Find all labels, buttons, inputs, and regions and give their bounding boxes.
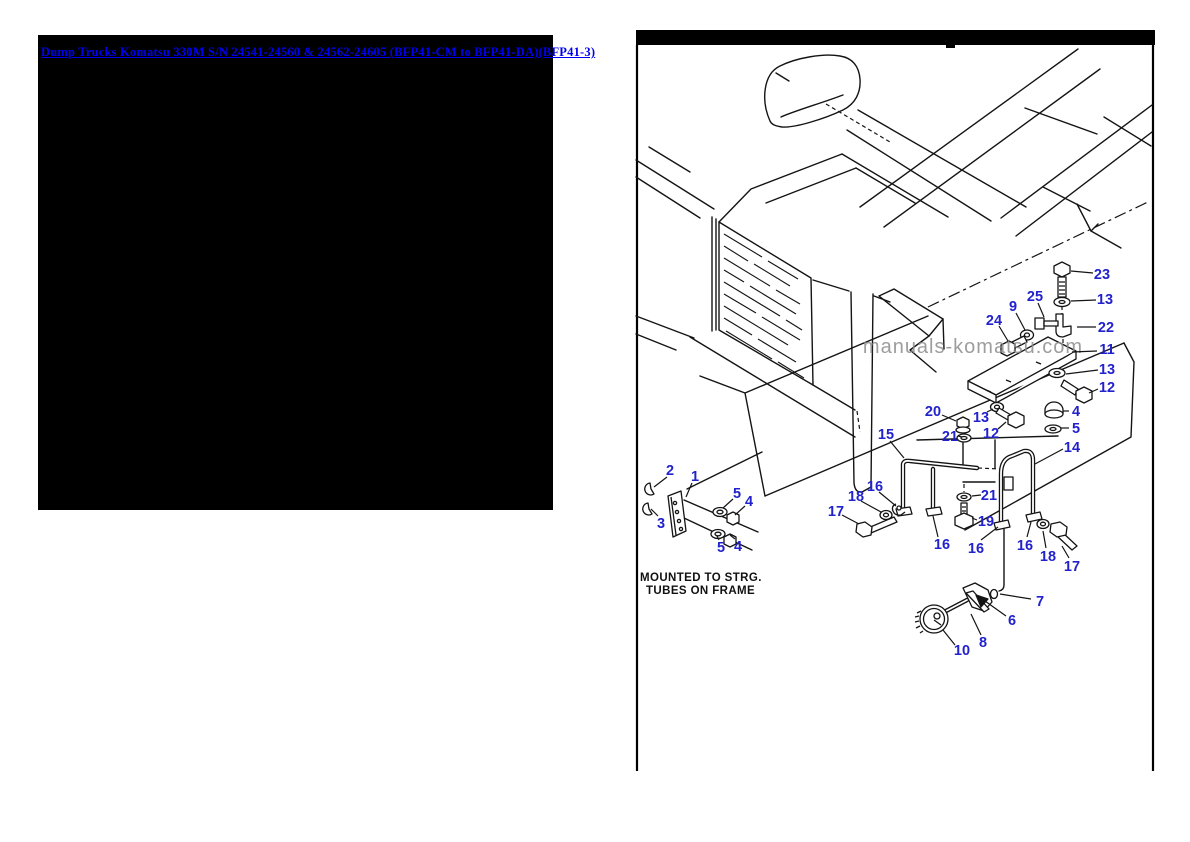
- tube-tab: [1004, 477, 1013, 490]
- washer-icon: [711, 530, 725, 539]
- callout-number-16: 16: [1017, 538, 1033, 554]
- callout-leader-line: [1038, 303, 1044, 317]
- callout-leader-line: [717, 536, 719, 540]
- page-image-black-placeholder: [38, 35, 553, 510]
- callout-number-12: 12: [1099, 380, 1115, 396]
- nut-icon: [1045, 402, 1063, 414]
- callout-number-17: 17: [1064, 559, 1080, 575]
- diagram-border-lines: [637, 45, 1153, 771]
- callout-leader-line: [723, 499, 733, 508]
- nut-icon: [727, 512, 739, 525]
- diagram-top-bar: [636, 30, 1155, 45]
- callout-leader-line: [1071, 271, 1093, 273]
- bolt-icon: [1061, 380, 1078, 395]
- callout-number-5: 5: [717, 540, 725, 556]
- callout-number-7: 7: [1036, 594, 1044, 610]
- callout-leader-line: [1072, 351, 1097, 352]
- callout-leader-line: [730, 535, 735, 539]
- machine-structure-lines: [636, 49, 1152, 591]
- box-louver-hatch: [724, 234, 804, 378]
- washer-icon: [957, 434, 971, 442]
- callout-number-9: 9: [1009, 299, 1017, 315]
- callout-leader-line: [735, 506, 745, 515]
- callout-leader-line: [879, 492, 896, 506]
- clamp-icon: [643, 503, 652, 515]
- washer-icon: [1049, 369, 1065, 378]
- callout-number-11: 11: [1099, 342, 1114, 358]
- washer-icon: [880, 511, 892, 520]
- callout-number-19: 19: [978, 514, 994, 530]
- callout-leader-line: [1071, 300, 1096, 301]
- callout-number-10: 10: [954, 643, 970, 659]
- parts-manual-page: { "header": { "breadcrumb": "Dump Trucks…: [0, 0, 1190, 842]
- callout-leader-line: [1035, 449, 1063, 464]
- callout-number-16: 16: [934, 537, 950, 553]
- clip-icon: [1026, 512, 1042, 522]
- bolt-icon: [868, 517, 897, 533]
- callout-leader-line: [654, 477, 667, 487]
- callout-leader-line: [842, 515, 859, 524]
- clamp-icon: [1056, 314, 1071, 337]
- callout-leader-line: [1027, 522, 1031, 537]
- callout-number-21: 21: [942, 429, 958, 445]
- callout-number-13: 13: [1099, 362, 1115, 378]
- callout-number-4: 4: [734, 539, 742, 555]
- note-line-2: TUBES ON FRAME: [646, 585, 755, 597]
- breadcrumb-link[interactable]: Dump Trucks Komatsu 330M S/N 24541-24560…: [41, 45, 595, 60]
- callout-number-2: 2: [666, 463, 674, 479]
- callout-leader-line: [1000, 594, 1031, 599]
- clip-icon: [896, 507, 912, 516]
- bracket-plate: [668, 491, 686, 537]
- clamp-icon: [645, 483, 654, 495]
- callout-leader-line: [861, 501, 881, 512]
- callout-number-4: 4: [1072, 404, 1080, 420]
- ring-part-7: [991, 590, 998, 599]
- bolt-icon: [1054, 262, 1070, 277]
- callout-leader-line: [998, 422, 1006, 429]
- callout-number-16: 16: [867, 479, 883, 495]
- washer-icon: [713, 508, 727, 517]
- watermark-text: manuals-komatsu.com: [863, 336, 1083, 358]
- callout-leader-line: [933, 516, 938, 537]
- callout-number-20: 20: [925, 404, 941, 420]
- strap-part-8: [966, 591, 989, 612]
- bolt-icon: [1008, 336, 1027, 350]
- washer-icon: [1021, 330, 1034, 340]
- callout-leader-line: [890, 441, 904, 458]
- callout-leader-line: [1016, 313, 1025, 330]
- clip-icon: [892, 504, 905, 515]
- plate-part-11: [968, 337, 1076, 395]
- callout-number-15: 15: [878, 427, 894, 443]
- clip-icon: [994, 520, 1010, 530]
- nut-icon: [957, 417, 969, 429]
- tube-parts-inner: [903, 451, 1033, 611]
- knob-icon: [920, 605, 948, 633]
- callout-leader-line: [651, 509, 658, 516]
- bolt-icon: [996, 408, 1011, 420]
- callout-leader-line: [972, 518, 977, 520]
- crank-part-6: [963, 583, 992, 611]
- callout-leader-line: [987, 409, 993, 412]
- note-line-1: MOUNTED TO STRG.: [640, 572, 762, 584]
- washer-icon: [1045, 425, 1061, 433]
- hidden-dashed-lines: [826, 104, 1063, 492]
- callout-number-18: 18: [848, 489, 864, 505]
- callout-number-8: 8: [979, 635, 987, 651]
- callout-leader-line: [958, 436, 962, 437]
- callout-number-22: 22: [1098, 320, 1114, 336]
- center-axis-line: [928, 201, 1150, 307]
- callout-number-4: 4: [745, 494, 753, 510]
- washer-icon: [1037, 520, 1049, 529]
- callout-number-16: 16: [968, 541, 984, 557]
- washer-icon: [957, 493, 971, 501]
- callout-number-23: 23: [1094, 267, 1110, 283]
- washer-icon: [991, 403, 1004, 412]
- callout-number-13: 13: [973, 410, 989, 426]
- callout-number-6: 6: [1008, 613, 1016, 629]
- callout-number-17: 17: [828, 504, 844, 520]
- callout-leader-line: [971, 614, 981, 635]
- callout-number-3: 3: [657, 516, 665, 532]
- callout-layer: 1235454151618172013211216161921161817142…: [651, 267, 1115, 659]
- callout-leader-line: [999, 326, 1008, 341]
- callout-number-25: 25: [1027, 289, 1043, 305]
- callout-number-14: 14: [1064, 440, 1080, 456]
- callout-leader-line: [1062, 546, 1069, 558]
- callout-number-13: 13: [1097, 292, 1113, 308]
- callout-leader-line: [981, 527, 998, 540]
- callout-number-5: 5: [1072, 421, 1080, 437]
- callout-leader-line: [1089, 389, 1098, 393]
- callout-number-24: 24: [986, 313, 1002, 329]
- bar-tick: [946, 45, 955, 48]
- callout-number-21: 21: [981, 488, 997, 504]
- callout-leader-line: [1066, 370, 1098, 374]
- callout-number-1: 1: [691, 469, 699, 485]
- bolt-icon: [955, 513, 973, 529]
- callout-leader-line: [1043, 531, 1046, 548]
- callout-leader-line: [972, 495, 981, 496]
- tube-parts-outer: [903, 451, 1033, 611]
- bolt-icon: [1057, 532, 1077, 550]
- callout-number-5: 5: [733, 486, 741, 502]
- nut-icon: [724, 534, 736, 547]
- callout-leader-line: [942, 415, 956, 421]
- clip-icon: [926, 507, 942, 516]
- callout-number-12: 12: [983, 426, 999, 442]
- bolt-icon: [1035, 318, 1044, 329]
- hardware-icons: [643, 262, 1092, 633]
- callout-leader-line: [943, 630, 955, 645]
- callout-number-18: 18: [1040, 549, 1056, 565]
- washer-icon: [1054, 298, 1070, 307]
- callout-leader-line: [985, 601, 1006, 616]
- callout-leader-line: [686, 483, 692, 497]
